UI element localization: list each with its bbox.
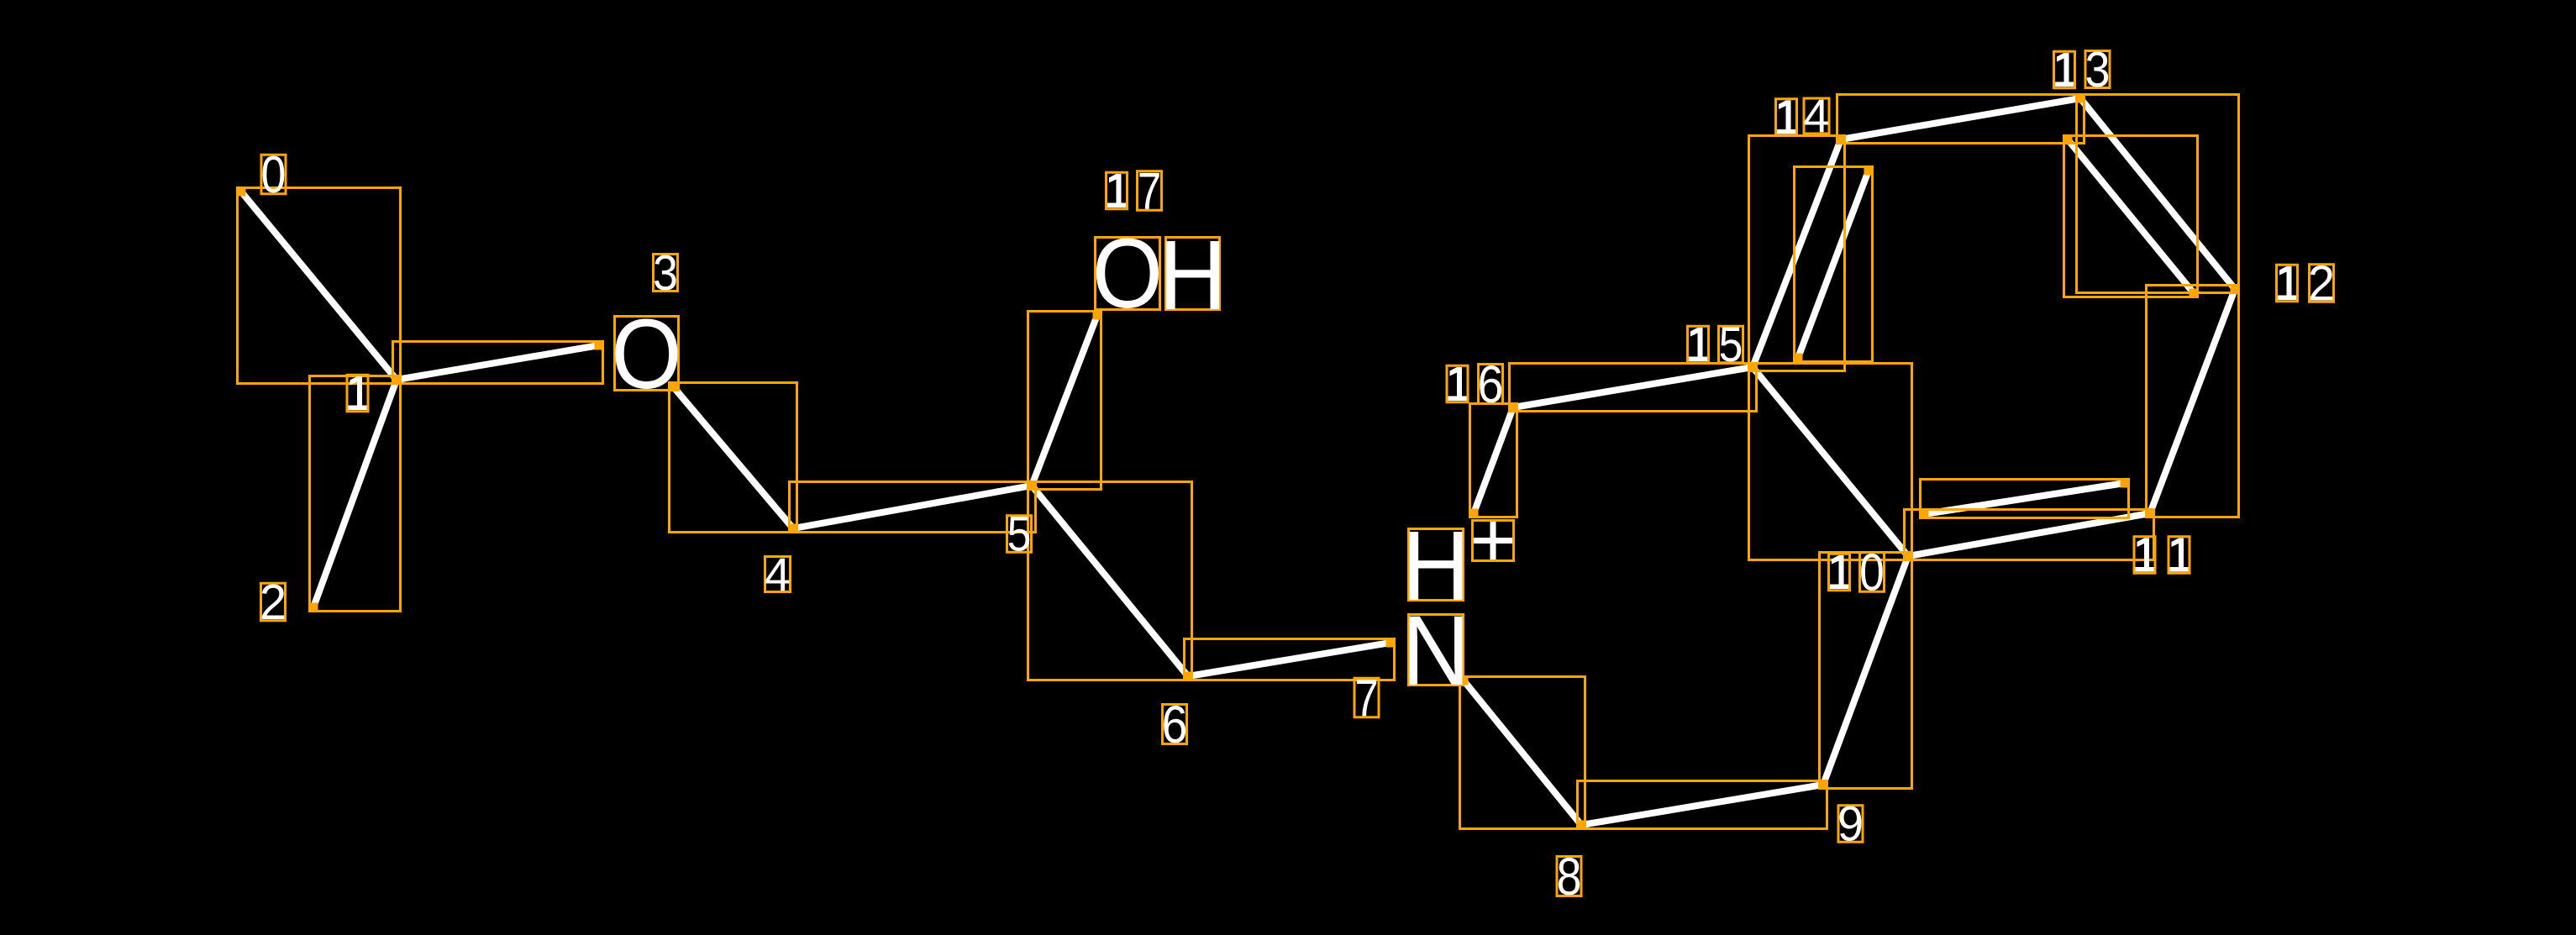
svg-text:3: 3 <box>2085 43 2111 97</box>
svg-text:5: 5 <box>1719 318 1743 372</box>
svg-text:9: 9 <box>1837 797 1864 852</box>
svg-text:7: 7 <box>1138 162 1162 221</box>
svg-text:2: 2 <box>260 574 287 630</box>
svg-text:7: 7 <box>1354 669 1379 728</box>
svg-text:O: O <box>611 299 681 410</box>
svg-text:5: 5 <box>1007 507 1032 562</box>
svg-text:6: 6 <box>1477 355 1503 414</box>
svg-text:4: 4 <box>765 548 791 601</box>
svg-text:8: 8 <box>1557 848 1582 906</box>
svg-text:2: 2 <box>2308 255 2335 312</box>
svg-text:N: N <box>1401 596 1469 707</box>
svg-text:H: H <box>1159 220 1227 331</box>
svg-text:3: 3 <box>653 246 678 301</box>
svg-text:4: 4 <box>1803 89 1829 142</box>
svg-text:0: 0 <box>1859 544 1885 602</box>
svg-text:6: 6 <box>1161 696 1187 754</box>
svg-text:O: O <box>1092 218 1163 329</box>
svg-text:0: 0 <box>261 145 287 204</box>
